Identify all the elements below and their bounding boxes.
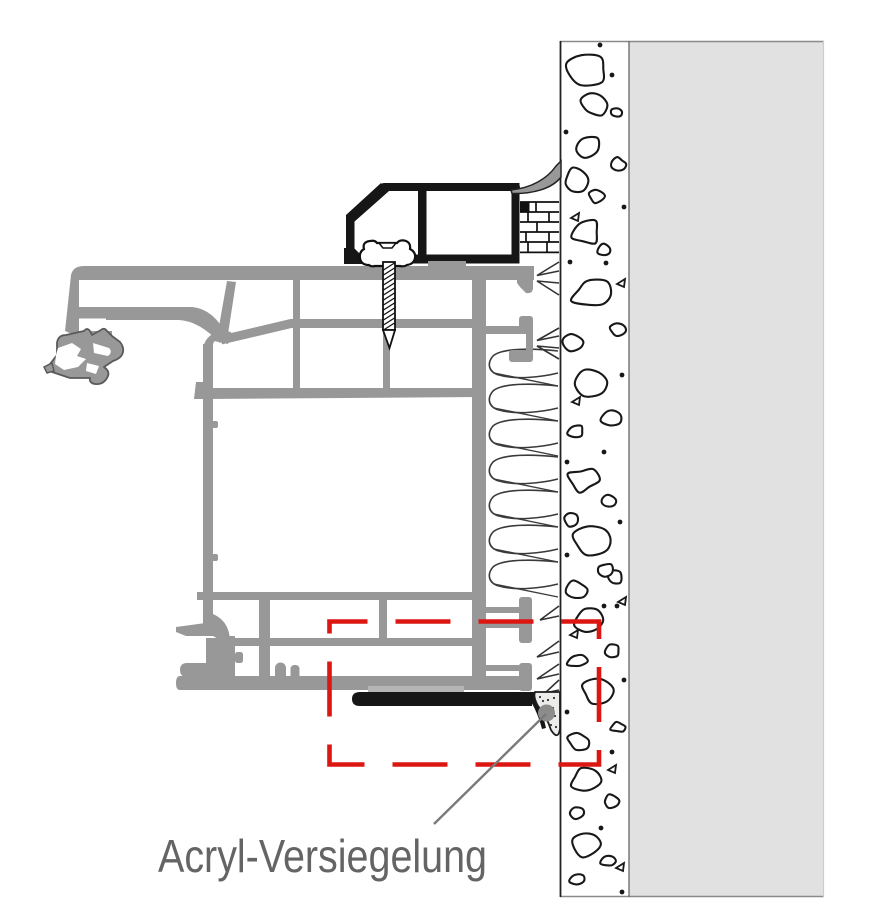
svg-text:Acryl-Versiegelung: Acryl-Versiegelung [158,830,487,882]
